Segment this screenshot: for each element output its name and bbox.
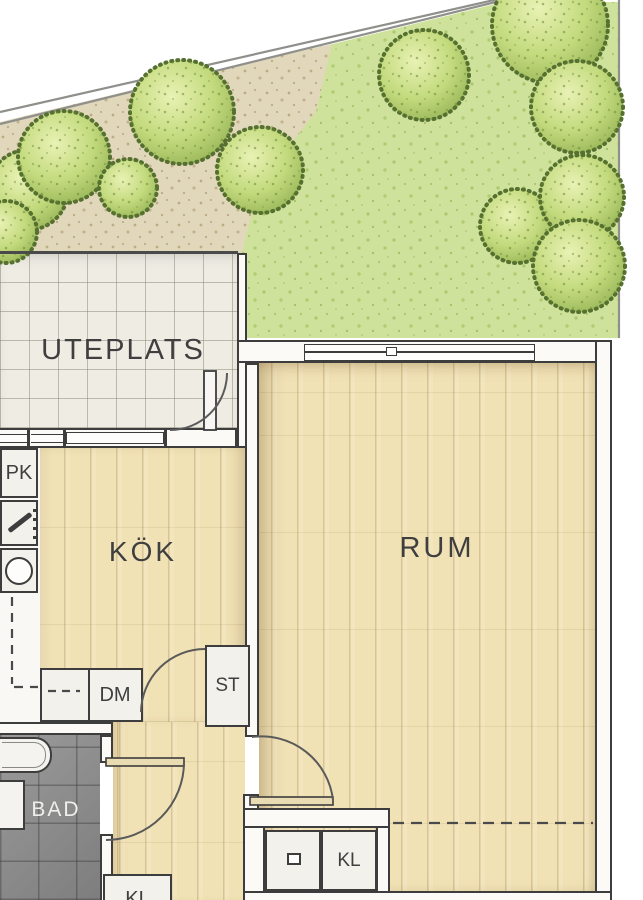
floor-plan: PK DM ST KL KL xyxy=(0,0,643,900)
window-vent-icon xyxy=(386,347,397,356)
garden xyxy=(0,0,643,345)
bad-label: BAD xyxy=(22,798,90,822)
window-rum-outer xyxy=(304,344,535,352)
pk-cabinet: PK xyxy=(0,448,38,498)
patio-top-edge xyxy=(0,251,238,254)
shaft-icon xyxy=(287,853,301,865)
window-kitchen-2 xyxy=(31,434,63,443)
bathtub-inner-line xyxy=(2,742,46,768)
kl-bottom-label: KL xyxy=(105,888,170,900)
uteplats-label: UTEPLATS xyxy=(18,334,228,367)
wall-bathroom-right-upper xyxy=(100,735,113,763)
wall-kitchen-top xyxy=(0,428,237,448)
rum-label: RUM xyxy=(382,532,492,565)
kl-label: KL xyxy=(323,832,375,889)
window-frame xyxy=(164,430,167,446)
tree xyxy=(18,111,110,203)
wall-closet-niche-right xyxy=(376,826,390,893)
wall-closet-niche-top xyxy=(243,808,390,828)
tree xyxy=(379,30,469,120)
window-frame xyxy=(27,430,30,446)
wall-closet-niche-left xyxy=(243,826,265,900)
kl-closet: KL xyxy=(321,830,377,891)
dm-label: DM xyxy=(90,670,140,720)
wall-bottom xyxy=(243,891,612,900)
tree xyxy=(130,60,234,164)
tree xyxy=(99,159,157,217)
st-label: ST xyxy=(207,647,248,725)
hob-unit xyxy=(0,500,38,546)
sink-icon xyxy=(5,557,33,585)
tree xyxy=(531,61,623,153)
tree xyxy=(217,127,303,213)
kok-label: KÖK xyxy=(78,536,208,568)
wall-rum-top xyxy=(237,340,612,363)
pk-label: PK xyxy=(2,450,36,496)
wall-rum-right xyxy=(595,340,612,900)
dm-label-cell: DM xyxy=(90,670,140,720)
window-rum-inner xyxy=(304,352,535,361)
bottom-closet: KL xyxy=(103,874,172,900)
dm-counter: DM xyxy=(40,668,143,722)
bathtub xyxy=(0,737,52,773)
st-closet: ST xyxy=(205,645,250,727)
shaft-box xyxy=(265,830,321,891)
hob-icon xyxy=(7,512,32,533)
window-kitchen-1 xyxy=(0,434,27,443)
hob-dots-icon xyxy=(33,507,36,539)
window-kitchen-3 xyxy=(66,432,164,444)
sink-unit xyxy=(0,548,38,593)
wall-bathroom-top xyxy=(0,722,113,735)
tree xyxy=(533,220,625,312)
